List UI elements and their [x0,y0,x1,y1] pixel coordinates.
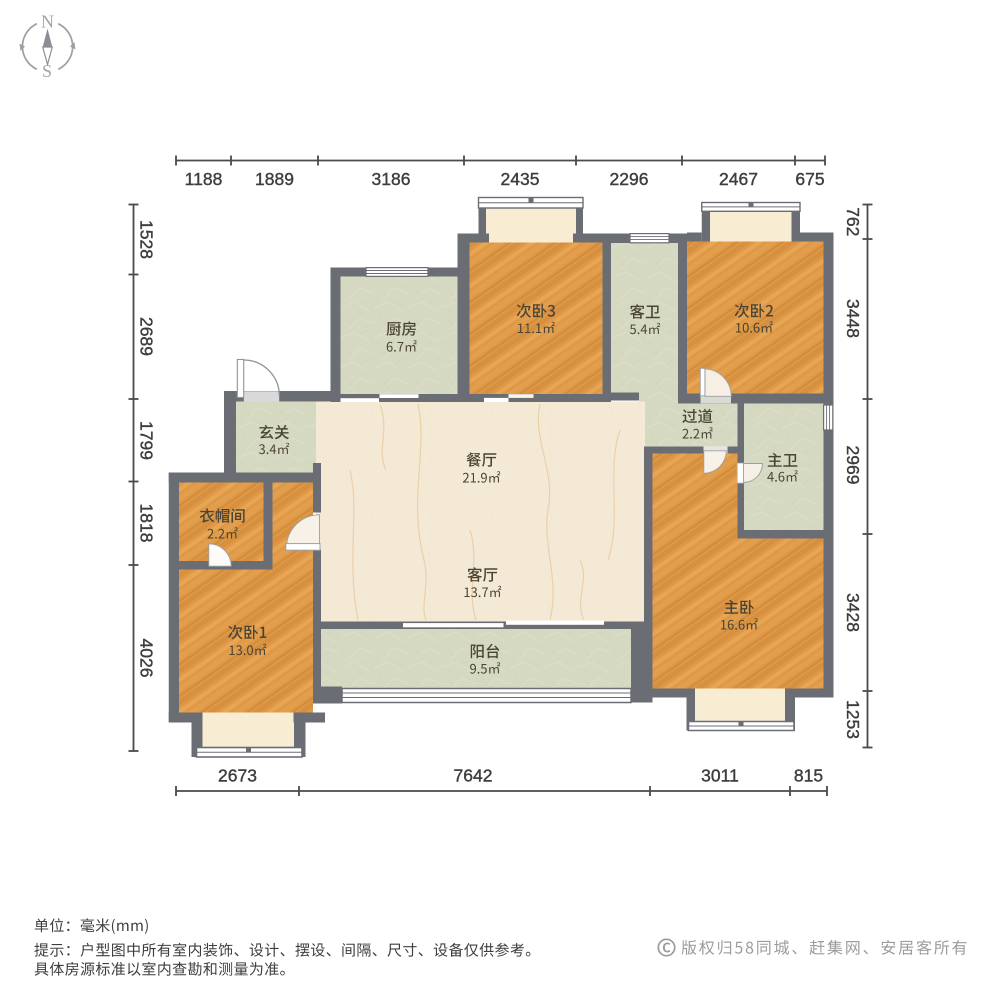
svg-text:3448: 3448 [843,299,863,338]
svg-text:1818: 1818 [137,504,157,543]
svg-text:S: S [42,61,52,81]
svg-text:762: 762 [843,207,863,236]
svg-text:7642: 7642 [454,766,493,786]
svg-text:1889: 1889 [255,169,294,189]
svg-text:3011: 3011 [701,766,739,786]
svg-text:1799: 1799 [137,421,157,460]
svg-text:N: N [41,12,54,32]
svg-text:3428: 3428 [843,593,863,632]
svg-text:2689: 2689 [137,317,157,356]
svg-text:2467: 2467 [719,169,758,189]
svg-text:3186: 3186 [372,169,411,189]
svg-text:1528: 1528 [137,220,157,259]
svg-text:675: 675 [795,169,824,189]
svg-text:1188: 1188 [185,169,223,189]
svg-text:2969: 2969 [843,446,863,485]
svg-text:1253: 1253 [843,700,863,739]
svg-text:2435: 2435 [501,169,540,189]
svg-text:2296: 2296 [610,169,649,189]
svg-text:4026: 4026 [137,639,157,678]
svg-text:815: 815 [794,766,823,786]
svg-text:2673: 2673 [218,766,257,786]
